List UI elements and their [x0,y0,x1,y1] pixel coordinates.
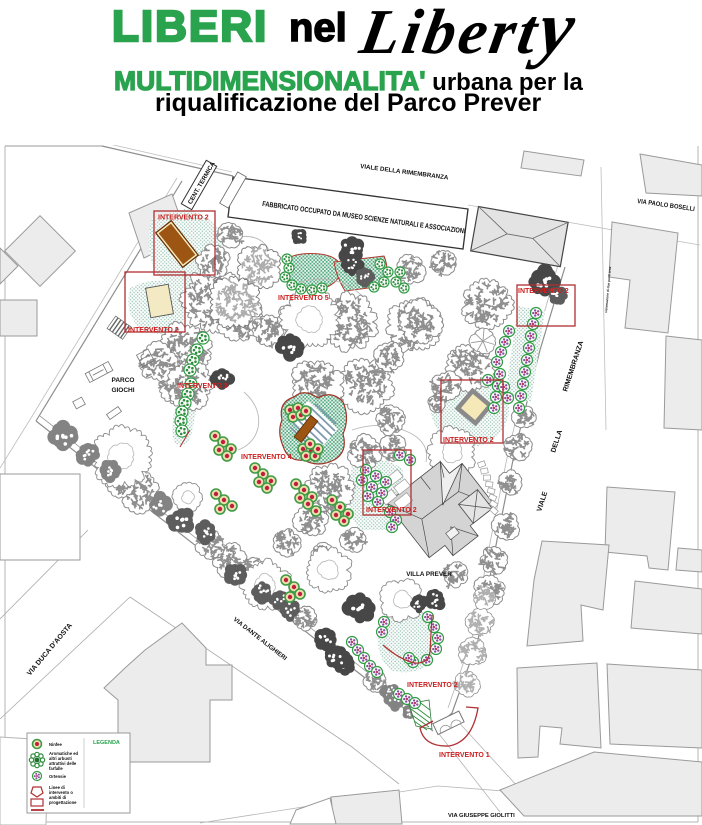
svg-text:VIA DUCA D'AOSTA: VIA DUCA D'AOSTA [26,622,74,677]
svg-text:INTERVENTO 2: INTERVENTO 2 [518,288,569,295]
svg-text:INTERVENTO 2: INTERVENTO 2 [128,327,179,334]
svg-text:INTERVENTO 1: INTERVENTO 1 [439,752,490,759]
svg-text:INTERVENTO 2: INTERVENTO 2 [407,682,458,689]
svg-text:RIMEMBRANZA: RIMEMBRANZA [562,340,585,392]
svg-text:INTERVENTO 2: INTERVENTO 2 [366,507,417,514]
svg-text:VIA PAOLO BOSELLI: VIA PAOLO BOSELLI [637,198,696,213]
svg-text:DELLA: DELLA [550,429,564,453]
svg-text:sistemazione di due punti area: sistemazione di due punti area [604,266,612,313]
svg-text:PARCO: PARCO [112,377,135,384]
svg-text:Ninfee: Ninfee [49,742,62,747]
svg-text:INTERVENTO 4: INTERVENTO 4 [241,454,292,461]
svg-text:INTERVENTO 2: INTERVENTO 2 [158,215,209,222]
svg-text:farfalle: farfalle [49,766,63,771]
svg-text:VIA GIUSEPPE GIOLITTI: VIA GIUSEPPE GIOLITTI [448,813,515,819]
svg-text:VIA DANTE ALIGHIERI: VIA DANTE ALIGHIERI [232,616,288,662]
svg-text:GIOCHI: GIOCHI [111,387,134,394]
svg-text:INTERVENTO 3: INTERVENTO 3 [177,383,228,390]
svg-text:Ortensie: Ortensie [49,774,67,779]
svg-text:progettazione: progettazione [49,800,77,805]
svg-text:LEGENDA: LEGENDA [93,740,120,746]
svg-text:INTERVENTO 5: INTERVENTO 5 [278,295,329,302]
svg-text:VILLA PREVER: VILLA PREVER [406,571,452,578]
svg-text:VIALE DELLA RIMEMBRANZA: VIALE DELLA RIMEMBRANZA [360,163,449,182]
svg-text:VIALE: VIALE [536,491,549,513]
svg-text:INTERVENTO 2: INTERVENTO 2 [443,437,494,444]
